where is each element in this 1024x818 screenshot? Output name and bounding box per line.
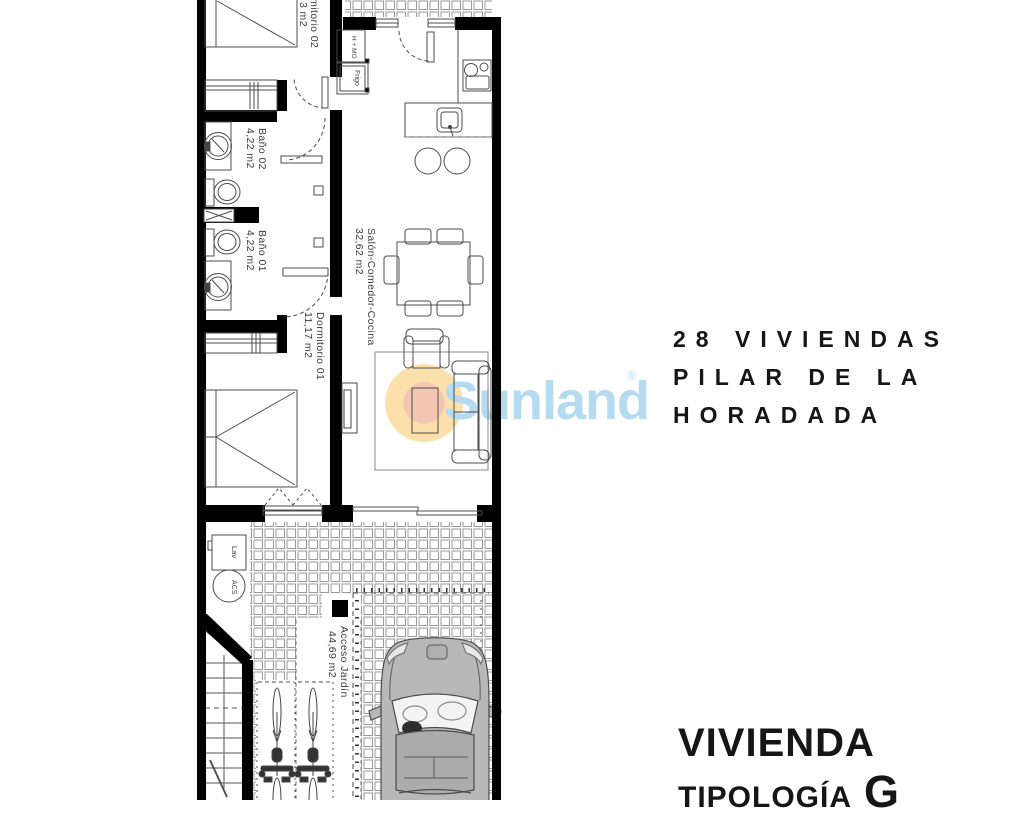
room-area: 3 m2: [297, 2, 309, 27]
room-label: Dormitorio 01: [314, 312, 326, 380]
room-area: 32,62 m2: [353, 228, 365, 275]
fixture-label: Lav: [230, 546, 239, 558]
room-area: 11,17 m2: [302, 312, 314, 358]
unit-title: VIVIENDA: [678, 722, 899, 764]
room-label: Acceso Jardín: [338, 626, 350, 698]
armchair: [404, 329, 449, 368]
coffee-table: [412, 388, 438, 433]
wardrobe: [205, 333, 277, 353]
room-area: 4,22 m2: [244, 230, 256, 271]
bathroom-sink: [205, 261, 232, 310]
room-label: Salón-Comedor-Cocina: [365, 228, 377, 346]
terrace-tiles: [345, 0, 492, 17]
garden-pillar: [332, 600, 348, 617]
project-title-line: PILAR DE LA: [673, 358, 949, 396]
shower-vent: [204, 209, 234, 222]
double-bed: [205, 390, 297, 487]
room-area: 4,22 m2: [244, 128, 256, 169]
floor-plan-page: { "plan": { "rooms": [ {"name": "Dormito…: [0, 0, 1024, 800]
kitchen-island: [405, 103, 492, 174]
fixture-label: H + MO: [350, 36, 357, 59]
typology-label: TIPOLOGÍA: [678, 781, 852, 815]
wardrobe: [205, 80, 277, 111]
tv-unit: [342, 383, 357, 433]
water-heater: [213, 570, 245, 602]
project-title-line: HORADADA: [673, 396, 949, 434]
unit-title-block: VIVIENDA TIPOLOGÍA G: [678, 722, 899, 818]
hallway-point: [314, 238, 323, 247]
laundry-unit: [208, 535, 246, 570]
typology-value: G: [864, 766, 899, 818]
stool: [415, 148, 441, 174]
fixture-label: Frigo: [353, 70, 360, 86]
bathroom-sink: [205, 122, 232, 170]
sofa: [452, 361, 491, 463]
project-title-line: 28 VIVIENDAS: [673, 320, 949, 358]
fixture-label: ACS: [230, 580, 237, 595]
dining-set: [384, 229, 483, 316]
hallway-point: [314, 186, 323, 195]
car-top-view: [369, 638, 501, 800]
rug-outline: [375, 352, 488, 470]
room-label: Baño 01: [256, 230, 268, 272]
room-area: 44,69 m2: [326, 631, 338, 678]
project-title: 28 VIVIENDAS PILAR DE LA HORADADA: [673, 320, 949, 434]
room-label: Baño 02: [256, 128, 268, 170]
toilet: [205, 179, 240, 206]
single-bed: [205, 0, 297, 47]
cooktop-sink-unit: [458, 30, 492, 103]
toilet: [205, 229, 240, 256]
stool: [444, 148, 470, 174]
